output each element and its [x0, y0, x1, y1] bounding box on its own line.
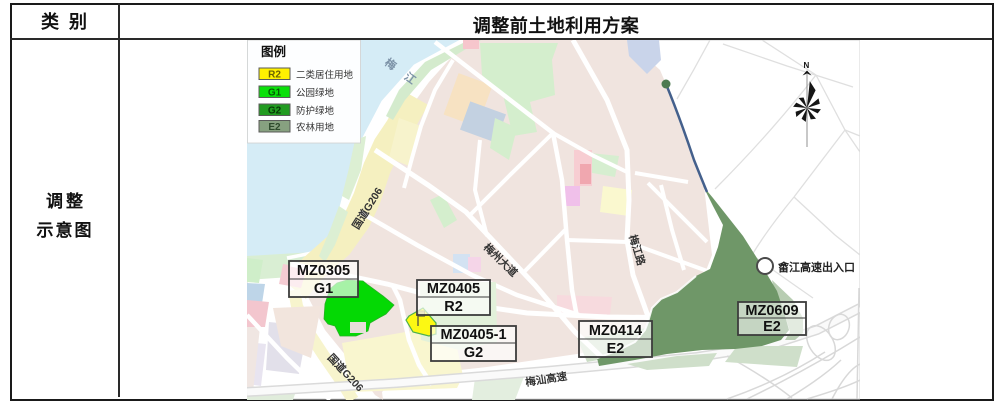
svg-text:G2: G2 — [268, 106, 282, 117]
svg-text:MZ0609: MZ0609 — [745, 303, 798, 319]
svg-text:公园绿地: 公园绿地 — [296, 87, 335, 99]
svg-text:G1: G1 — [268, 88, 282, 99]
svg-text:E2: E2 — [268, 122, 281, 133]
svg-text:R2: R2 — [268, 70, 281, 81]
svg-text:R2: R2 — [444, 299, 463, 315]
svg-text:防护绿地: 防护绿地 — [296, 105, 335, 117]
svg-text:图例: 图例 — [261, 44, 286, 59]
svg-text:E2: E2 — [607, 341, 625, 357]
svg-text:MZ0405-1: MZ0405-1 — [440, 327, 506, 343]
svg-text:G1: G1 — [314, 281, 333, 297]
svg-text:N: N — [804, 61, 810, 70]
svg-text:MZ0405: MZ0405 — [427, 281, 480, 297]
svg-text:农林用地: 农林用地 — [296, 122, 335, 134]
svg-text:MZ0305: MZ0305 — [297, 263, 350, 279]
svg-text:MZ0414: MZ0414 — [589, 323, 642, 339]
svg-text:G2: G2 — [464, 345, 483, 361]
svg-text:E2: E2 — [763, 319, 781, 335]
svg-text:二类居住用地: 二类居住用地 — [296, 69, 354, 81]
svg-text:畲江高速出入口: 畲江高速出入口 — [777, 260, 855, 274]
